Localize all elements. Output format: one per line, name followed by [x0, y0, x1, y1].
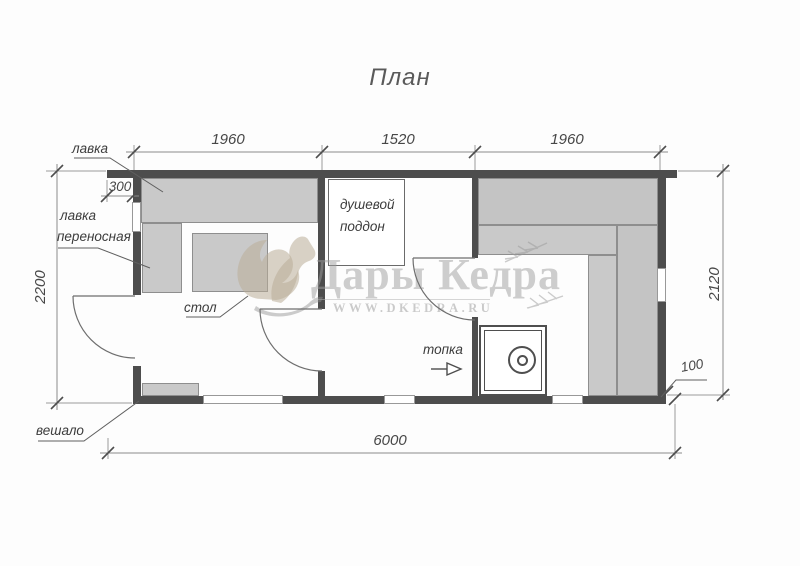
leader-offset100 — [661, 380, 707, 397]
label-hanger: вешало — [36, 423, 84, 438]
entrance-door — [73, 296, 135, 358]
label-table: стол — [184, 300, 217, 315]
dim-overall-width: 6000 — [360, 432, 420, 449]
doors — [73, 258, 475, 371]
dim-right-height: 2120 — [706, 254, 722, 314]
dim-top-1960b: 1960 — [537, 131, 597, 148]
extension-lines — [46, 145, 730, 459]
label-firebox: топка — [423, 342, 463, 357]
floor-plan-drawing: План Дары Кедра WWW.DKEDRA.RU — [0, 0, 800, 566]
page-title: План — [352, 64, 448, 92]
label-shower-line1: душевой — [340, 197, 395, 212]
door-room2-sauna — [413, 258, 475, 320]
dim-wall-offset-300: 300 — [102, 179, 138, 194]
dim-top-1960a: 1960 — [198, 131, 258, 148]
dim-left-height: 2200 — [32, 257, 48, 317]
label-bench: лавка — [72, 141, 108, 156]
dimension-ticks — [51, 146, 729, 459]
firebox-arrow — [431, 363, 461, 375]
label-portable-bench-line1: лавка — [60, 208, 96, 223]
label-portable-bench-line2: переносная — [57, 229, 131, 244]
door-room1-room2 — [260, 309, 322, 371]
leader-portable-bench — [58, 248, 150, 268]
dim-top-1520: 1520 — [368, 131, 428, 148]
label-shower-line2: поддон — [340, 219, 385, 234]
